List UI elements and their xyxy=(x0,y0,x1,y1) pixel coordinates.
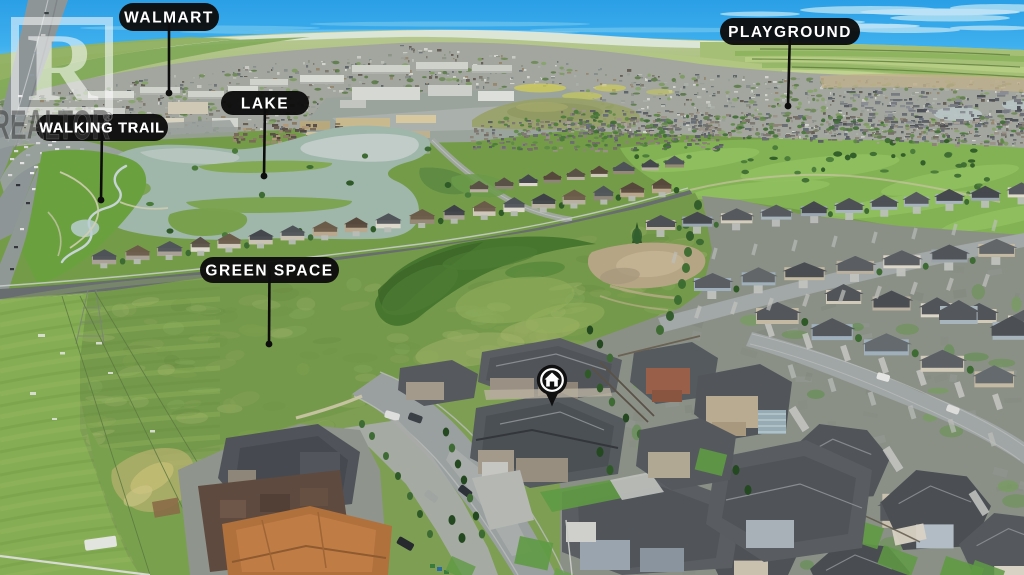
svg-text:WALKING TRAIL: WALKING TRAIL xyxy=(39,121,165,137)
svg-text:LAKE: LAKE xyxy=(241,96,289,113)
svg-text:PLAYGROUND: PLAYGROUND xyxy=(728,24,852,41)
svg-text:WALMART: WALMART xyxy=(124,10,214,27)
svg-text:GREEN SPACE: GREEN SPACE xyxy=(205,263,333,280)
